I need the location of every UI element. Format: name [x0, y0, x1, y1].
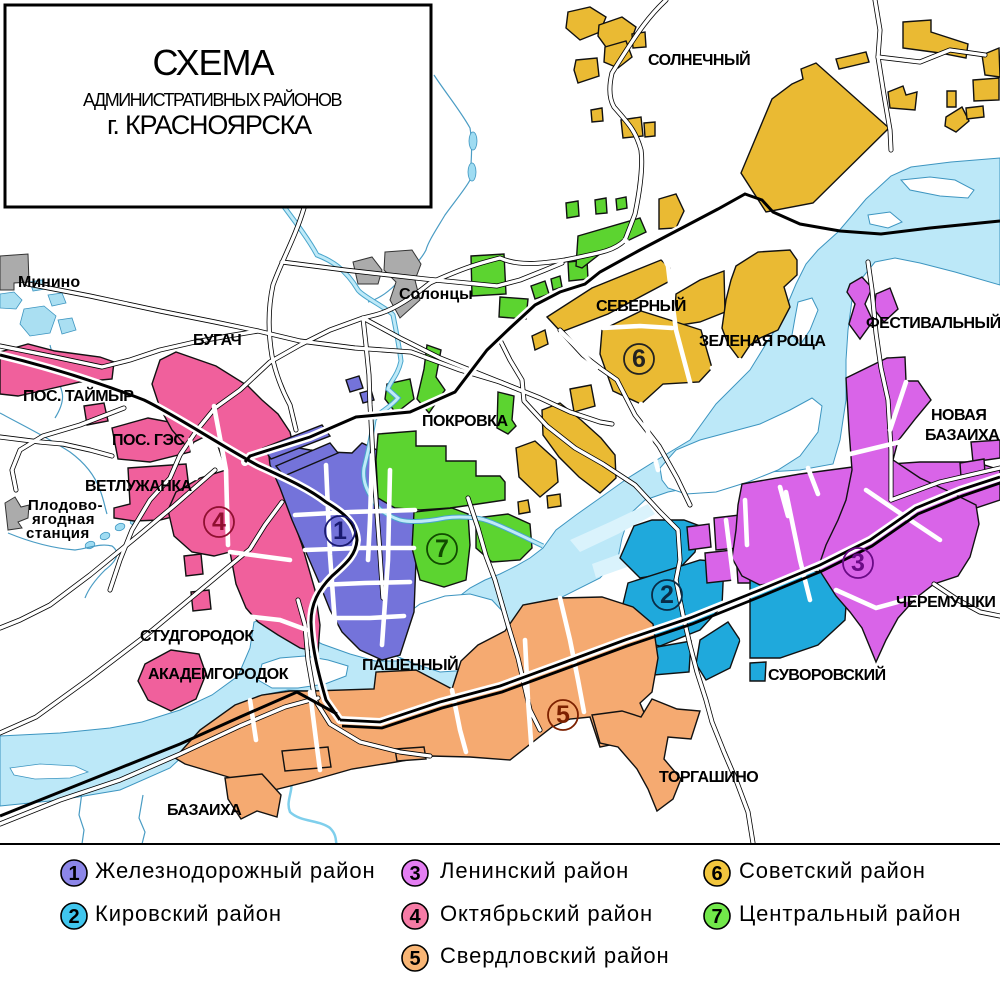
svg-text:ПОС. ГЭС: ПОС. ГЭС [112, 432, 185, 449]
svg-text:2: 2 [660, 581, 674, 609]
svg-text:БАЗАИХА: БАЗАИХА [167, 802, 242, 819]
svg-text:Минино: Минино [18, 274, 80, 291]
svg-text:Железнодорожный район: Железнодорожный район [95, 858, 376, 883]
svg-text:6: 6 [711, 863, 722, 885]
svg-text:станция: станция [26, 525, 90, 542]
svg-text:7: 7 [435, 535, 449, 563]
svg-text:5: 5 [556, 701, 570, 729]
svg-text:Центральный район: Центральный район [739, 901, 961, 926]
svg-text:СХЕМА: СХЕМА [153, 42, 275, 83]
svg-text:Солонцы: Солонцы [399, 286, 473, 303]
svg-text:СТУДГОРОДОК: СТУДГОРОДОК [140, 628, 254, 645]
svg-text:3: 3 [409, 863, 420, 885]
svg-text:3: 3 [851, 549, 865, 577]
svg-text:Свердловский район: Свердловский район [440, 943, 670, 968]
svg-text:ЗЕЛЕНАЯ РОЩА: ЗЕЛЕНАЯ РОЩА [699, 333, 826, 350]
svg-text:ПОС. ТАЙМЫР: ПОС. ТАЙМЫР [23, 386, 134, 405]
svg-text:СЕВЕРНЫЙ: СЕВЕРНЫЙ [596, 296, 686, 315]
svg-text:СУВОРОВСКИЙ: СУВОРОВСКИЙ [768, 665, 886, 684]
svg-text:4: 4 [212, 508, 226, 536]
svg-text:2: 2 [68, 906, 79, 928]
svg-text:АКАДЕМГОРОДОК: АКАДЕМГОРОДОК [148, 666, 289, 683]
svg-text:5: 5 [409, 948, 420, 970]
svg-text:Кировский район: Кировский район [95, 901, 282, 926]
svg-text:БУГАЧ: БУГАЧ [193, 332, 241, 349]
svg-text:7: 7 [711, 906, 722, 928]
svg-text:г. КРАСНОЯРСКА: г. КРАСНОЯРСКА [107, 110, 312, 140]
svg-text:СОЛНЕЧНЫЙ: СОЛНЕЧНЫЙ [648, 50, 750, 69]
svg-text:6: 6 [632, 345, 646, 373]
svg-text:БАЗАИХА: БАЗАИХА [925, 427, 1000, 444]
svg-text:4: 4 [409, 906, 421, 928]
svg-text:ЧЕРЕМУШКИ: ЧЕРЕМУШКИ [896, 594, 995, 611]
svg-text:ПОКРОВКА: ПОКРОВКА [422, 413, 508, 430]
svg-text:НОВАЯ: НОВАЯ [931, 407, 986, 424]
svg-text:АДМИНИСТРАТИВНЫХ РАЙОНОВ: АДМИНИСТРАТИВНЫХ РАЙОНОВ [83, 89, 343, 110]
svg-text:Октябрьский район: Октябрьский район [440, 901, 653, 926]
svg-text:ТОРГАШИНО: ТОРГАШИНО [659, 769, 758, 786]
svg-text:Советский район: Советский район [739, 858, 926, 883]
svg-text:ВЕТЛУЖАНКА: ВЕТЛУЖАНКА [85, 478, 193, 495]
svg-text:ПАШЕННЫЙ: ПАШЕННЫЙ [362, 655, 458, 674]
svg-text:ФЕСТИВАЛЬНЫЙ: ФЕСТИВАЛЬНЫЙ [866, 313, 1000, 332]
svg-text:Ленинский район: Ленинский район [440, 858, 629, 883]
svg-text:1: 1 [333, 517, 347, 545]
svg-text:1: 1 [68, 863, 79, 885]
